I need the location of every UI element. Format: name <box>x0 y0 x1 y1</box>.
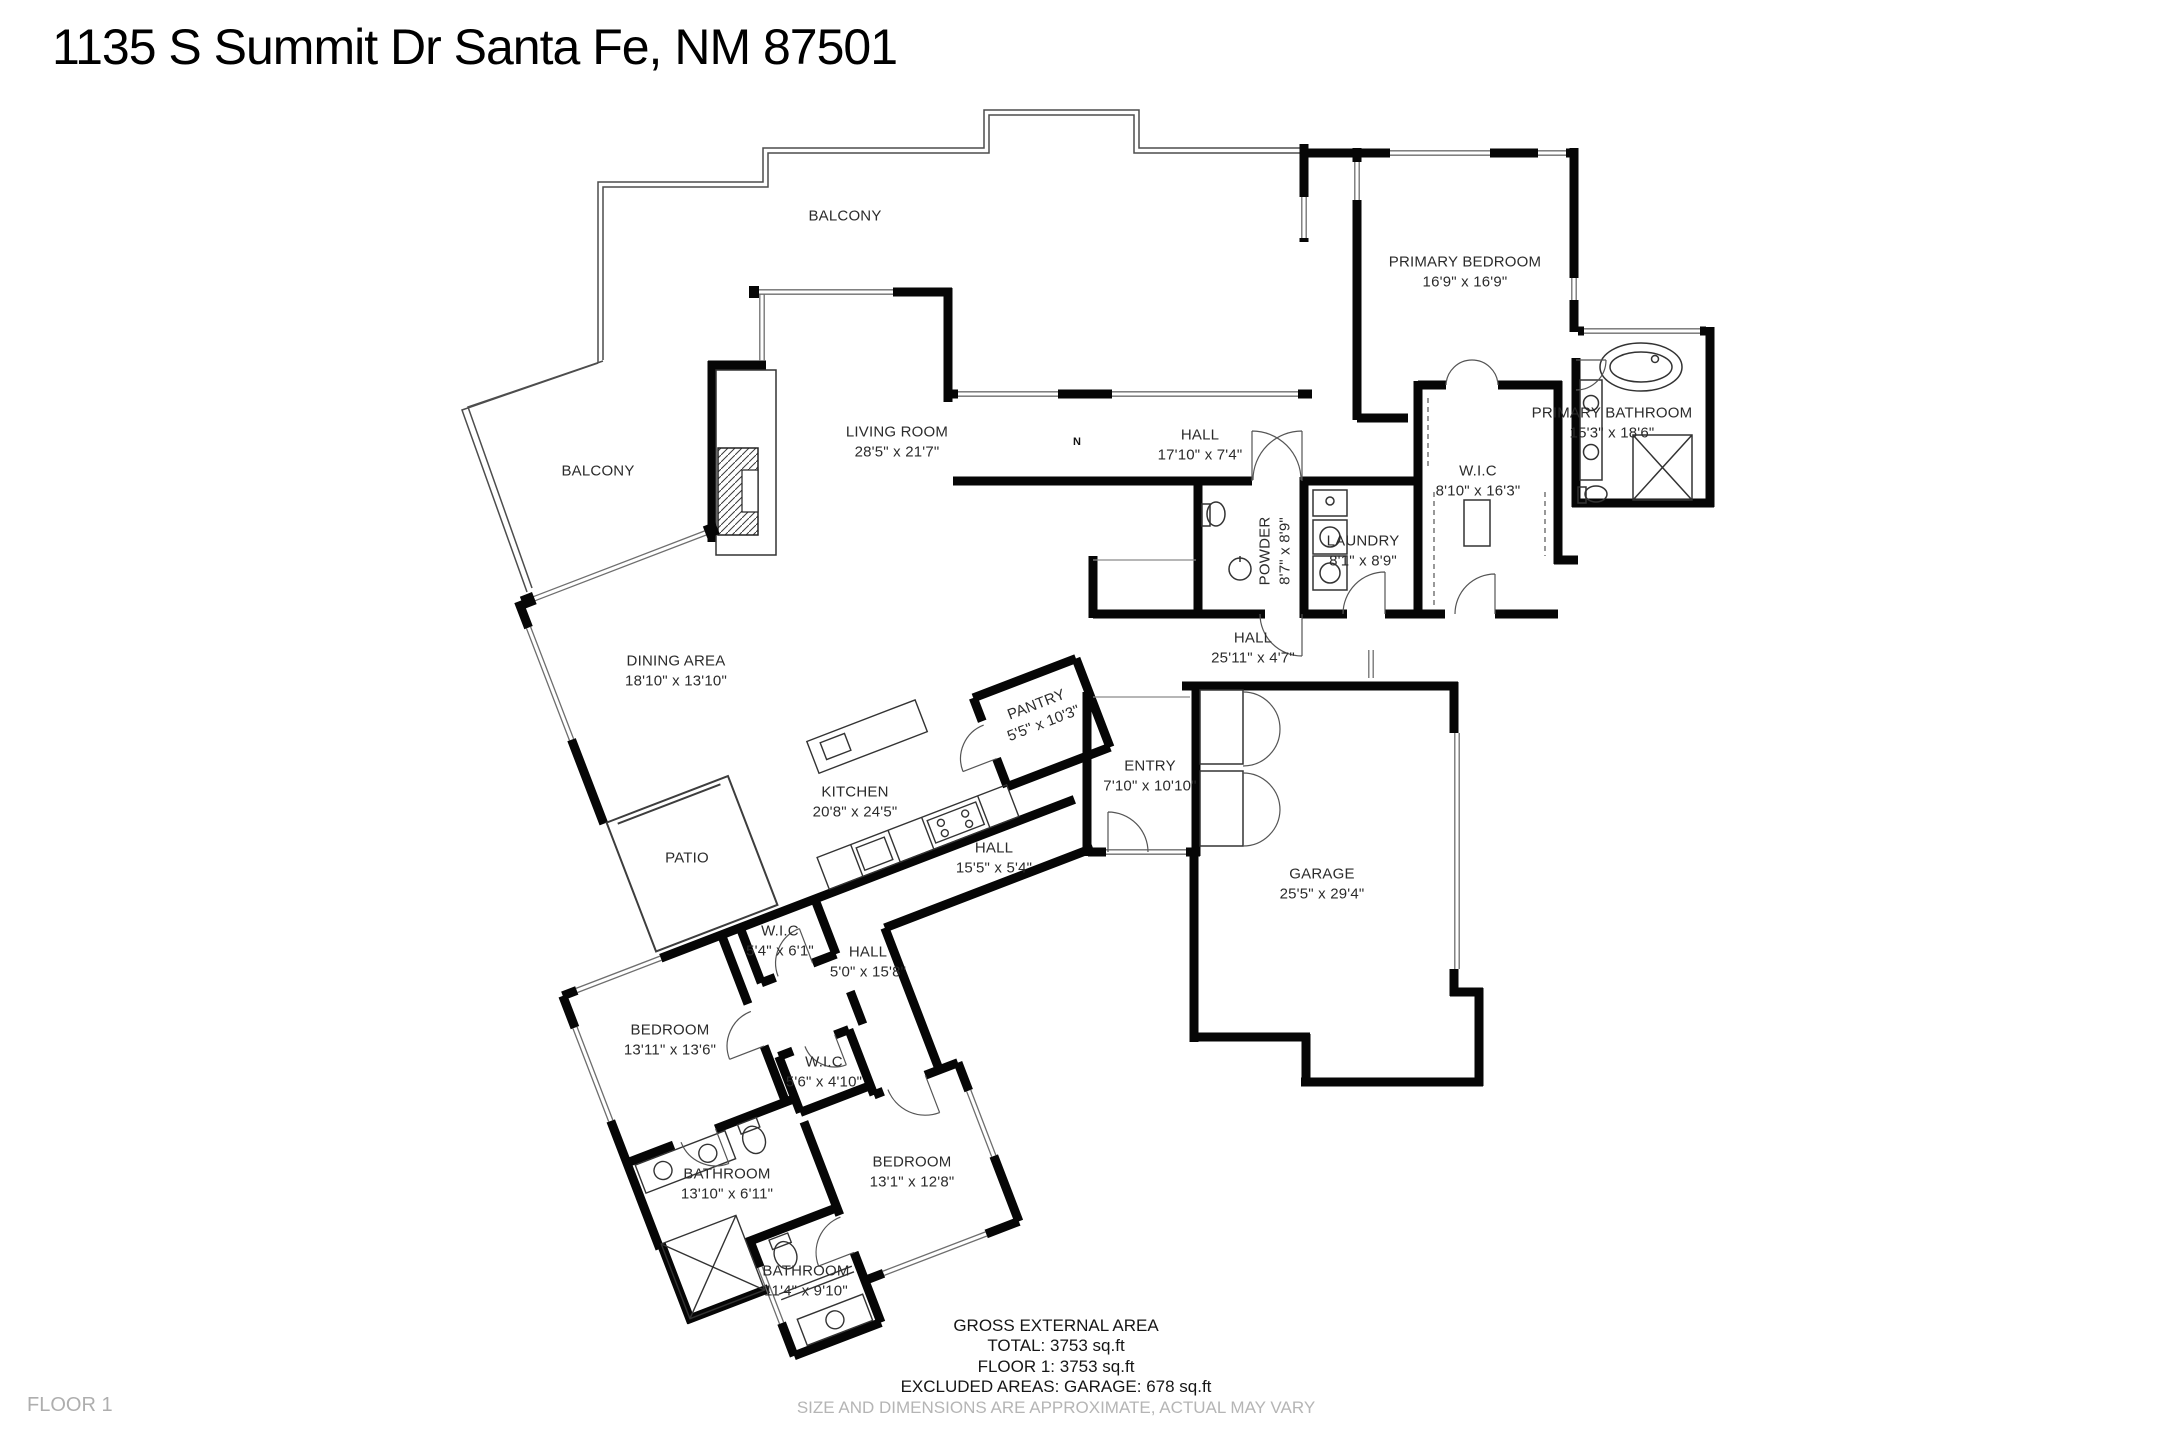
summary-total: TOTAL: 3753 sq.ft <box>797 1336 1315 1356</box>
room-label-patio: PATIO <box>665 848 709 868</box>
room-label-hall-bedrooms: HALL5'0" x 15'8" <box>830 943 906 982</box>
room-label-balcony-left: BALCONY <box>561 461 634 481</box>
room-label-dining-area: DINING AREA18'10" x 13'10" <box>625 652 727 691</box>
area-summary: GROSS EXTERNAL AREA TOTAL: 3753 sq.ft FL… <box>797 1316 1315 1418</box>
room-label-entry: ENTRY7'10" x 10'10" <box>1103 757 1196 796</box>
room-label-laundry: LAUNDRY8'1" x 8'9" <box>1327 532 1400 571</box>
room-label-bedroom-1: BEDROOM13'11" x 13'6" <box>624 1021 716 1060</box>
room-label-primary-bathroom: PRIMARY BATHROOM15'3" x 18'6" <box>1532 404 1693 443</box>
room-label-balcony-top: BALCONY <box>808 206 881 226</box>
floor-marker: FLOOR 1 <box>27 1394 113 1417</box>
summary-floor1: FLOOR 1: 3753 sq.ft <box>797 1357 1315 1377</box>
room-label-living-room: LIVING ROOM28'5" x 21'7" <box>846 423 948 462</box>
room-label-hall-kitchen: HALL15'5" x 5'4" <box>956 839 1032 878</box>
room-label-bedroom-2: BEDROOM13'1" x 12'8" <box>870 1153 955 1192</box>
room-label-hall-middle: HALL25'11" x 4'7" <box>1211 629 1295 668</box>
floorplan-drawing <box>0 0 2173 1448</box>
summary-disclaimer: SIZE AND DIMENSIONS ARE APPROXIMATE, ACT… <box>797 1398 1315 1418</box>
room-label-bathroom-1: BATHROOM13'10" x 6'11" <box>681 1165 773 1204</box>
wing-rotated <box>422 419 1273 1388</box>
room-label-wic-1: W.I.C5'4" x 6'1" <box>746 922 814 961</box>
room-label-hall-upper: HALL17'10" x 7'4" <box>1158 426 1243 465</box>
balcony-outline <box>462 110 1301 592</box>
summary-excluded: EXCLUDED AREAS: GARAGE: 678 sq.ft <box>797 1377 1315 1397</box>
summary-gross-heading: GROSS EXTERNAL AREA <box>797 1316 1315 1336</box>
fireplace <box>716 370 776 555</box>
room-label-bathroom-2: BATHROOM11'4" x 9'10" <box>762 1262 849 1301</box>
room-label-kitchen: KITCHEN20'8" x 24'5" <box>813 783 898 822</box>
room-label-powder: POWDER8'7" x 8'9" <box>1256 517 1295 586</box>
room-label-wic-primary: W.I.C8'10" x 16'3" <box>1436 462 1521 501</box>
room-label-garage: GARAGE25'5" x 29'4" <box>1280 865 1365 904</box>
floorplan-page: 1135 S Summit Dr Santa Fe, NM 87501 <box>0 0 2173 1448</box>
room-label-wic-2: W.I.C5'6" x 4'10" <box>786 1053 862 1092</box>
north-indicator: N <box>1073 436 1081 448</box>
room-label-primary-bedroom: PRIMARY BEDROOM16'9" x 16'9" <box>1389 253 1541 292</box>
